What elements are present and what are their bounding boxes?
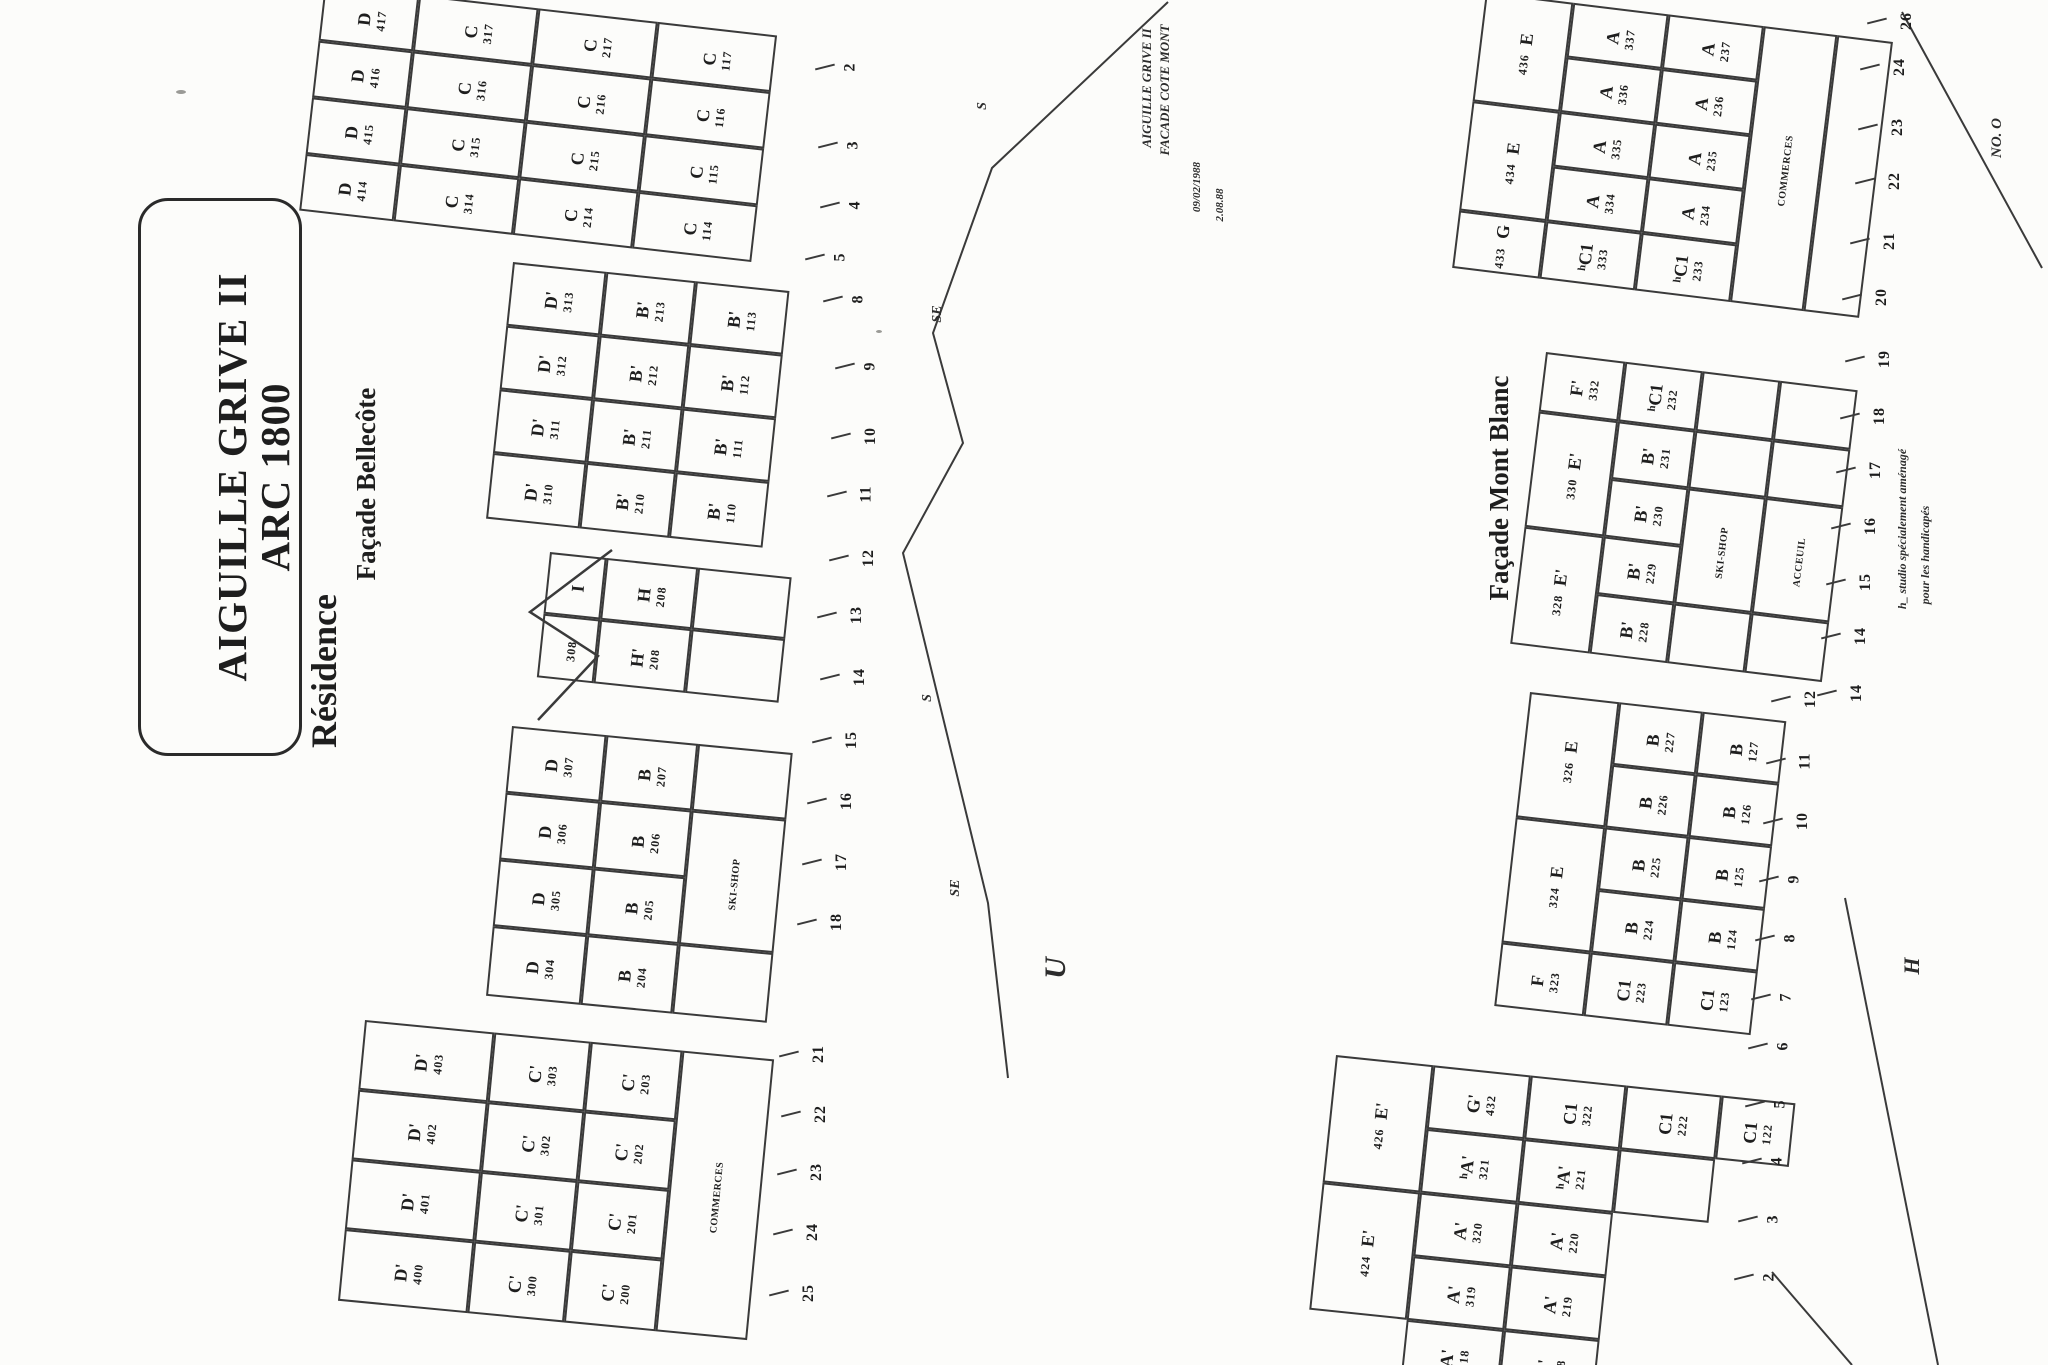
unit-letter: B xyxy=(1726,742,1745,756)
unit-number: 311 xyxy=(548,419,562,440)
handicap-note-line1: h_ studio spécialement aménagé xyxy=(1893,409,1911,649)
unit-number: 307 xyxy=(561,756,575,778)
unit-letter: A' xyxy=(1450,1221,1470,1241)
empty-cell xyxy=(1613,1149,1715,1223)
unit-cell-D313: D'313 xyxy=(506,262,606,335)
unit-cell-F332: F'332 xyxy=(1539,352,1626,421)
unit-number: 416 xyxy=(367,67,381,89)
block-montblanc-upper: 436E434E433GA337A336A335A334ʰC1333A237A2… xyxy=(1452,0,1893,318)
facade-montblanc-label: Façade Mont Blanc xyxy=(1481,373,1517,603)
ground-tick-right-6: 6 xyxy=(1779,1037,1788,1055)
tick-dash xyxy=(777,1169,797,1176)
unit-number: 207 xyxy=(654,765,668,787)
unit-letter: C xyxy=(574,94,593,109)
unit-label: 326E xyxy=(1517,694,1621,829)
tick-number: 15 xyxy=(843,731,861,749)
ground-tick-left-12: 12 xyxy=(860,549,878,567)
handwritten-mark-H: H xyxy=(1900,906,1924,1026)
unit-letter: ʰA' xyxy=(1553,1165,1573,1191)
profile-label-SE: SE xyxy=(929,284,947,344)
unit-cell-B227: B227 xyxy=(1612,702,1703,774)
tick-dash xyxy=(807,798,827,805)
unit-label: D304 xyxy=(488,928,589,1007)
tick-number: 4 xyxy=(1769,1157,1787,1166)
unit-cell-B206: B206 xyxy=(594,802,692,878)
unit-letter: A xyxy=(1583,193,1602,208)
unit-cell-B124: B124 xyxy=(1674,899,1765,971)
unit-number: 332 xyxy=(1586,379,1600,401)
empty-cell xyxy=(1744,613,1829,682)
unit-letter: A' xyxy=(1547,1231,1567,1251)
unit-label: B'212 xyxy=(595,338,691,411)
unit-letter: C' xyxy=(518,1133,538,1153)
unit-label: I xyxy=(545,554,608,622)
unit-letter: B xyxy=(1643,733,1662,747)
unit-cell-C1333: ʰC1333 xyxy=(1539,221,1641,290)
unit-number: 333 xyxy=(1595,248,1609,270)
ground-tick-right-12: 12 xyxy=(1802,690,1820,708)
unit-letter: D' xyxy=(521,482,541,502)
unit-letter: C xyxy=(680,221,699,236)
ground-tick-left-18: 18 xyxy=(828,913,846,931)
unit-cell-B204: B204 xyxy=(581,935,679,1013)
unit-letter: A' xyxy=(1540,1295,1560,1315)
unit-number: 414 xyxy=(354,180,368,202)
cell-text: SKI-SHOP xyxy=(1713,527,1730,580)
tick-number: 15 xyxy=(1857,573,1875,591)
unit-letter: ʰC1 xyxy=(1645,383,1666,413)
unit-number: 217 xyxy=(600,36,614,58)
unit-letter: C' xyxy=(605,1212,625,1232)
tick-number: 17 xyxy=(833,853,851,871)
unit-letter: C xyxy=(448,137,467,152)
unit-number: 210 xyxy=(632,492,646,514)
ground-tick-left-14: 14 xyxy=(851,668,869,686)
ground-tick-right-9: 9 xyxy=(1790,870,1799,888)
profile-label-SE: SE xyxy=(947,858,965,918)
unit-letter: ʰA' xyxy=(1457,1155,1477,1181)
tick-dash xyxy=(831,433,851,440)
tick-number: 19 xyxy=(1876,350,1894,368)
tick-number: 2 xyxy=(1761,1273,1779,1282)
tick-dash xyxy=(823,296,843,303)
unit-number: 112 xyxy=(737,374,751,395)
unit-cell-B111: B'111 xyxy=(676,409,776,482)
unit-cell-D400: D'400 xyxy=(338,1229,474,1313)
tick-number: 25 xyxy=(800,1284,818,1302)
ground-tick-left-10: 10 xyxy=(862,427,880,445)
unit-number: 226 xyxy=(1655,793,1669,815)
unit-cell-D307: D307 xyxy=(506,726,607,802)
unit-letter: B' xyxy=(1638,447,1658,466)
unit-number: 322 xyxy=(1580,1105,1594,1127)
ground-tick-right-20: 20 xyxy=(1873,288,1891,306)
unit-label: C'302 xyxy=(483,1104,586,1183)
unit-label: D305 xyxy=(495,862,596,938)
unit-cell-A320: A'320 xyxy=(1413,1193,1517,1267)
tick-number: 8 xyxy=(850,295,868,304)
unit-letter: C xyxy=(699,51,718,66)
unit-label xyxy=(674,946,775,1025)
block-montblanc-mid: F'332330E'328E'ʰC1232B'231B'230B'229B'22… xyxy=(1510,352,1857,682)
unit-label: F323 xyxy=(1496,945,1593,1019)
cell-text: COMMERCES xyxy=(1776,135,1796,208)
unit-letter: I xyxy=(568,584,587,593)
unit-cell-B229: B'229 xyxy=(1597,536,1681,603)
unit-letter: B' xyxy=(704,502,724,521)
unit-letter: B' xyxy=(1624,562,1644,581)
unit-number: 211 xyxy=(639,428,653,449)
unit-letter: C xyxy=(561,207,580,222)
unit-letter: A xyxy=(1698,41,1717,56)
scanned-facade-plan: Résidence AIGUILLE GRIVE II ARC 1800 Faç… xyxy=(0,0,2048,1365)
tick-number: 2 xyxy=(842,63,860,72)
tick-dash xyxy=(827,491,847,498)
empty-cell xyxy=(672,944,773,1023)
unit-cell-E436: 436E xyxy=(1473,0,1574,112)
unit-cell-B125: B125 xyxy=(1681,837,1772,909)
block-bellecote-lower: D'403D'402D'401D'400C'303C'302C'301C'300… xyxy=(338,1020,774,1340)
ground-tick-right-22: 22 xyxy=(1886,172,1904,190)
unit-number: 232 xyxy=(1665,389,1679,411)
unit-cell-B207: B207 xyxy=(600,735,698,811)
unit-letter: D xyxy=(354,12,373,27)
unit-letter: C' xyxy=(504,1274,524,1294)
unit-cell-B228: B'228 xyxy=(1590,594,1675,663)
unit-cell-C114: C114 xyxy=(632,192,758,262)
unit-letter: B' xyxy=(724,310,744,329)
ground-tick-left-16: 16 xyxy=(838,792,856,810)
unit-label: H'208 xyxy=(595,622,693,695)
unit-letter: D xyxy=(541,758,560,773)
unit-number: 225 xyxy=(1648,856,1662,878)
unit-letter: D xyxy=(528,891,547,906)
unit-cell-C1223: C1223 xyxy=(1584,953,1675,1026)
unit-letter: E' xyxy=(1565,452,1585,471)
unit-number: 110 xyxy=(724,502,738,523)
unit-cell-A321: ʰA'321 xyxy=(1420,1129,1524,1203)
unit-cell-D312: D'312 xyxy=(500,326,600,399)
tick-dash xyxy=(1748,1043,1768,1050)
unit-number: 208 xyxy=(654,586,668,608)
unit-letter: A xyxy=(1691,96,1710,111)
tick-number: 3 xyxy=(1765,1215,1783,1224)
unit-letter: C xyxy=(567,151,586,166)
unit-letter: B' xyxy=(619,428,639,447)
unit-letter: B xyxy=(1629,858,1648,872)
unit-number: 200 xyxy=(618,1283,632,1305)
unit-letter: C1 xyxy=(1697,988,1717,1012)
tick-dash xyxy=(802,859,822,866)
unit-label xyxy=(694,746,795,822)
ground-tick-left-22: 22 xyxy=(812,1105,830,1123)
tick-number: 9 xyxy=(862,362,880,371)
empty-cell xyxy=(692,744,793,820)
tick-number: 9 xyxy=(1786,875,1804,884)
unit-cell-SKISHOP: SKI-SHOP xyxy=(1674,488,1766,613)
ground-tick-right-14: 14 xyxy=(1852,627,1870,645)
tick-dash xyxy=(817,612,837,619)
ground-tick-left-21: 21 xyxy=(810,1045,828,1063)
unit-letter: D' xyxy=(398,1192,418,1212)
unit-number: 116 xyxy=(712,106,726,128)
unit-number: 426 xyxy=(1371,1128,1385,1150)
unit-cell-D403: D'403 xyxy=(358,1020,494,1102)
ground-tick-left-24: 24 xyxy=(804,1223,822,1241)
unit-letter: B xyxy=(634,768,653,782)
unit-number: 310 xyxy=(541,483,555,505)
unit-letter: C xyxy=(686,164,705,179)
unit-letter: C' xyxy=(511,1203,531,1223)
tick-number: 22 xyxy=(1886,172,1904,190)
unit-number: 432 xyxy=(1484,1094,1498,1116)
unit-number: 114 xyxy=(699,219,713,241)
unit-cell-A221: ʰA'221 xyxy=(1518,1139,1620,1213)
ground-tick-right-16: 16 xyxy=(1862,517,1880,535)
tick-dash xyxy=(797,919,817,926)
unit-letter: G' xyxy=(1464,1093,1484,1114)
ground-tick-right-24: 24 xyxy=(1891,58,1909,76)
unit-label: D'310 xyxy=(488,455,588,530)
unit-letter: C' xyxy=(618,1073,638,1093)
unit-cell-B127: B127 xyxy=(1696,712,1787,784)
empty-cell xyxy=(1667,604,1752,673)
unit-letter: B xyxy=(1719,805,1738,819)
unit-cell-C214: C214 xyxy=(513,178,639,248)
tick-dash xyxy=(1845,356,1865,363)
unit-letter: F xyxy=(1528,974,1547,987)
tick-number: 10 xyxy=(862,427,880,445)
ground-tick-left-5: 5 xyxy=(836,248,845,266)
ground-tick-left-13: 13 xyxy=(848,606,866,624)
unit-label: C'301 xyxy=(476,1174,579,1253)
unit-number: 215 xyxy=(587,149,601,171)
unit-cell-D305: D305 xyxy=(493,859,594,935)
unit-number: 336 xyxy=(1615,83,1629,105)
unit-letter: D xyxy=(535,825,554,840)
tick-number: 22 xyxy=(812,1105,830,1123)
unit-number: 111 xyxy=(731,438,745,459)
unit-letter: D xyxy=(348,68,367,83)
tick-number: 18 xyxy=(1871,407,1889,425)
unit-label xyxy=(687,631,787,704)
unit-letter: D' xyxy=(528,418,548,438)
unit-letter: A xyxy=(1596,84,1615,99)
unit-cell-C303: C'303 xyxy=(488,1032,591,1111)
unit-number: 208 xyxy=(647,648,661,670)
unit-number: 203 xyxy=(638,1073,652,1095)
unit-number: 335 xyxy=(1609,137,1623,159)
unit-letter: B xyxy=(1621,920,1640,934)
tick-number: 10 xyxy=(1794,812,1812,830)
unit-number: 306 xyxy=(554,823,568,845)
unit-letter: C1 xyxy=(1560,1102,1580,1126)
unit-cell-C1322: C1322 xyxy=(1524,1075,1626,1149)
unit-letter: C xyxy=(461,24,480,39)
ground-tick-left-15: 15 xyxy=(843,731,861,749)
handwritten-note-date2: 2.08.88 xyxy=(1212,160,1228,250)
tick-dash xyxy=(835,363,855,370)
tick-number: 23 xyxy=(808,1163,826,1181)
unit-cell-B113: B'113 xyxy=(689,281,789,354)
unit-letter: D xyxy=(341,125,360,140)
unit-letter: B' xyxy=(633,300,653,319)
tick-number: 23 xyxy=(1889,118,1907,136)
unit-cell-E426: 426E' xyxy=(1323,1055,1434,1193)
unit-cell-C1222: C1222 xyxy=(1620,1086,1722,1160)
unit-number: 312 xyxy=(554,355,568,377)
unit-number: 122 xyxy=(1760,1123,1774,1145)
unit-label: C'202 xyxy=(579,1114,677,1192)
unit-label: C'203 xyxy=(586,1044,684,1122)
unit-cell-B205: B205 xyxy=(587,868,685,944)
unit-number: 220 xyxy=(1567,1232,1581,1254)
ground-tick-right-4: 4 xyxy=(1773,1152,1782,1170)
unit-label: C1223 xyxy=(1585,955,1676,1028)
unit-letter: C' xyxy=(598,1283,618,1303)
ground-tick-left-25: 25 xyxy=(800,1284,818,1302)
facade-bellecote-label: Façade Bellecôte xyxy=(348,369,384,599)
unit-number: 227 xyxy=(1662,730,1676,752)
unit-number: 402 xyxy=(424,1123,438,1145)
ground-tick-right-15: 15 xyxy=(1857,573,1875,591)
tick-number: 12 xyxy=(1802,690,1820,708)
unit-number: 221 xyxy=(1573,1168,1587,1190)
handwritten-note-date1: 09/02/1988 xyxy=(1189,137,1205,237)
handwritten-mark-NOO: NO. O xyxy=(1985,78,2009,198)
unit-cell-B126: B126 xyxy=(1689,774,1780,846)
unit-number: 127 xyxy=(1746,740,1760,762)
ground-tick-left-9: 9 xyxy=(866,357,875,375)
unit-letter: ʰC1 xyxy=(1670,254,1691,284)
tick-number: 7 xyxy=(1778,993,1796,1002)
unit-number: 316 xyxy=(474,79,488,101)
tick-dash xyxy=(1817,690,1837,697)
unit-letter: B xyxy=(628,834,647,848)
unit-number: 123 xyxy=(1717,991,1731,1013)
unit-number: 231 xyxy=(1658,447,1672,469)
unit-cell-x308: 308 xyxy=(537,614,600,684)
unit-cell-E324: 324E xyxy=(1501,817,1605,952)
scan-speck xyxy=(176,90,186,94)
unit-cell-B112: B'112 xyxy=(683,345,783,418)
tick-number: 8 xyxy=(1782,934,1800,943)
unit-label: 434E xyxy=(1461,103,1562,223)
unit-cell-D415: D415 xyxy=(306,97,407,164)
unit-cell-B211: B'211 xyxy=(586,399,682,472)
unit-number: 115 xyxy=(706,163,720,185)
unit-label: C'201 xyxy=(573,1183,671,1261)
ground-tick-right-19: 19 xyxy=(1876,350,1894,368)
unit-cell-C1233: ʰC1233 xyxy=(1635,233,1737,302)
unit-label xyxy=(1615,1151,1717,1225)
unit-label: D306 xyxy=(501,795,602,871)
unit-letter: F' xyxy=(1567,379,1587,397)
unit-letter: A xyxy=(1678,205,1697,220)
ground-tick-left-2: 2 xyxy=(846,58,855,76)
unit-label: SKI-SHOP xyxy=(681,813,788,955)
unit-number: 313 xyxy=(561,291,575,313)
unit-label: C'300 xyxy=(469,1244,572,1325)
unit-number: 234 xyxy=(1697,204,1711,226)
unit-number: 124 xyxy=(1724,928,1738,950)
tick-number: 21 xyxy=(1881,232,1899,250)
tick-number: 26 xyxy=(1898,12,1916,30)
unit-label: 424E' xyxy=(1311,1184,1422,1322)
empty-cell xyxy=(1688,431,1772,498)
unit-letter: A' xyxy=(1533,1359,1553,1365)
handwritten-mark-U: U xyxy=(1044,908,1068,1028)
tick-dash xyxy=(820,674,840,681)
block-bellecote-left: D307D306D305D304B207B206B205B204SKI-SHOP xyxy=(486,726,793,1023)
unit-label: D414 xyxy=(301,156,402,223)
tick-number: 5 xyxy=(832,253,850,262)
unit-cell-D310: D'310 xyxy=(486,453,586,528)
unit-number: 323 xyxy=(1547,972,1561,994)
unit-letter: E xyxy=(1547,865,1566,879)
ground-tick-left-8: 8 xyxy=(854,290,863,308)
unit-number: 113 xyxy=(744,310,758,331)
ground-tick-right-18: 18 xyxy=(1871,407,1889,425)
tick-dash xyxy=(773,1229,793,1236)
tick-number: 3 xyxy=(845,141,863,150)
unit-cell-C1123: C1123 xyxy=(1667,962,1758,1035)
unit-cell-D311: D'311 xyxy=(493,389,593,462)
unit-number: 214 xyxy=(580,206,594,228)
unit-letter: E xyxy=(1561,740,1580,754)
unit-cell-SKISHOP: SKI-SHOP xyxy=(679,811,786,953)
unit-cell-B231: B'231 xyxy=(1611,421,1695,488)
tick-number: 24 xyxy=(1891,58,1909,76)
unit-number: 320 xyxy=(1470,1222,1484,1244)
tick-dash xyxy=(779,1051,799,1058)
unit-cell-C314: C314 xyxy=(394,165,520,235)
tick-number: 13 xyxy=(848,606,866,624)
unit-label: D'400 xyxy=(340,1231,476,1315)
unit-label: C214 xyxy=(515,180,641,250)
empty-cell xyxy=(1766,440,1850,507)
unit-cell-D401: D'401 xyxy=(345,1159,481,1241)
residence-title-line3: ARC 1800 xyxy=(252,197,298,757)
ground-tick-right-10: 10 xyxy=(1794,812,1812,830)
unit-letter: B' xyxy=(1617,620,1637,639)
unit-label: 324E xyxy=(1503,819,1607,954)
unit-letter: D xyxy=(335,182,354,197)
handwritten-note-subtitle: FACADE COTE MONT xyxy=(1155,0,1175,180)
ground-tick-right-7: 7 xyxy=(1782,988,1791,1006)
tick-number: 24 xyxy=(804,1223,822,1241)
tick-number: 18 xyxy=(828,913,846,931)
ground-tick-left-17: 17 xyxy=(833,853,851,871)
tick-dash xyxy=(781,1111,801,1118)
unit-number: 223 xyxy=(1634,981,1648,1003)
unit-number: 302 xyxy=(537,1134,551,1156)
unit-label: B206 xyxy=(596,804,694,880)
unit-cell-E434: 434E xyxy=(1459,101,1560,221)
unit-cell-B210: B'210 xyxy=(580,463,676,538)
unit-number: 219 xyxy=(1560,1295,1574,1317)
unit-label xyxy=(1746,615,1831,684)
unit-number: 229 xyxy=(1644,562,1658,584)
tick-number: 17 xyxy=(1867,461,1885,479)
unit-number: 205 xyxy=(641,898,655,920)
block-montblanc-bottom: 426E'424E'G'432ʰA'321A'320A'319A'318C132… xyxy=(1303,1055,1796,1365)
unit-number: 300 xyxy=(524,1274,538,1296)
block-bellecote-tower: I308H208H'208 xyxy=(537,552,792,703)
unit-cell-D402: D'402 xyxy=(352,1090,488,1172)
tick-number: 16 xyxy=(838,792,856,810)
unit-number: 222 xyxy=(1675,1115,1689,1137)
